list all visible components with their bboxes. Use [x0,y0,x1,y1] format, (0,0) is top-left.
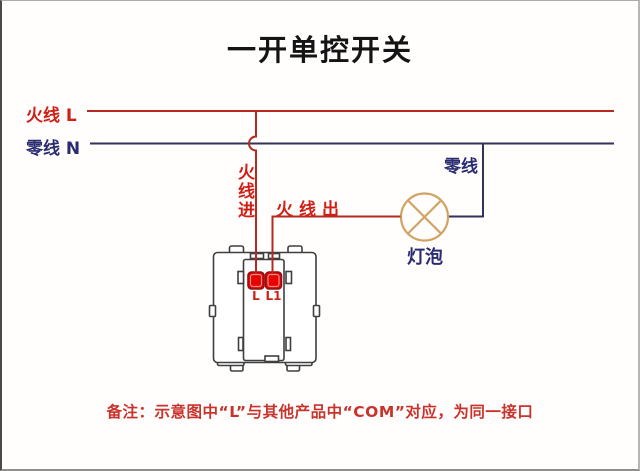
page-title: 一开单控开关 [2,27,638,69]
switch-body [210,246,320,371]
switch-side-tab-right [314,306,320,317]
switch-slot-lower-right [286,338,291,351]
footnote: 备注：示意图中“L”与其他产品中“COM”对应，为同一接口 [2,400,638,422]
wiring-diagram-canvas: 一开单控开关 火线 L 零线 N 火线进 火线出 零线 灯泡 L L1 备注：示… [0,0,640,471]
live-out-label: 火线出 [276,195,345,220]
switch-side-tab-left [210,306,216,317]
switch-slot-upper-right [286,272,292,284]
live-bus-label: 火线 L [26,101,77,126]
terminal-l1-label: L1 [263,289,284,303]
switch-slot-lower-left [239,338,244,351]
switch-top-notch-right [269,254,280,259]
live-in-label: 火线进 [232,163,257,233]
terminal-l-label: L [248,289,264,303]
bulb-symbol [401,194,448,241]
switch-bottom-notch [265,356,279,362]
bulb-cross-icon [408,200,441,233]
neutral-branch-label: 零线 [444,152,478,177]
neutral-bus-label: 零线 N [26,134,80,159]
bulb-label: 灯泡 [395,243,455,269]
switch-slot-upper-left [238,272,244,284]
